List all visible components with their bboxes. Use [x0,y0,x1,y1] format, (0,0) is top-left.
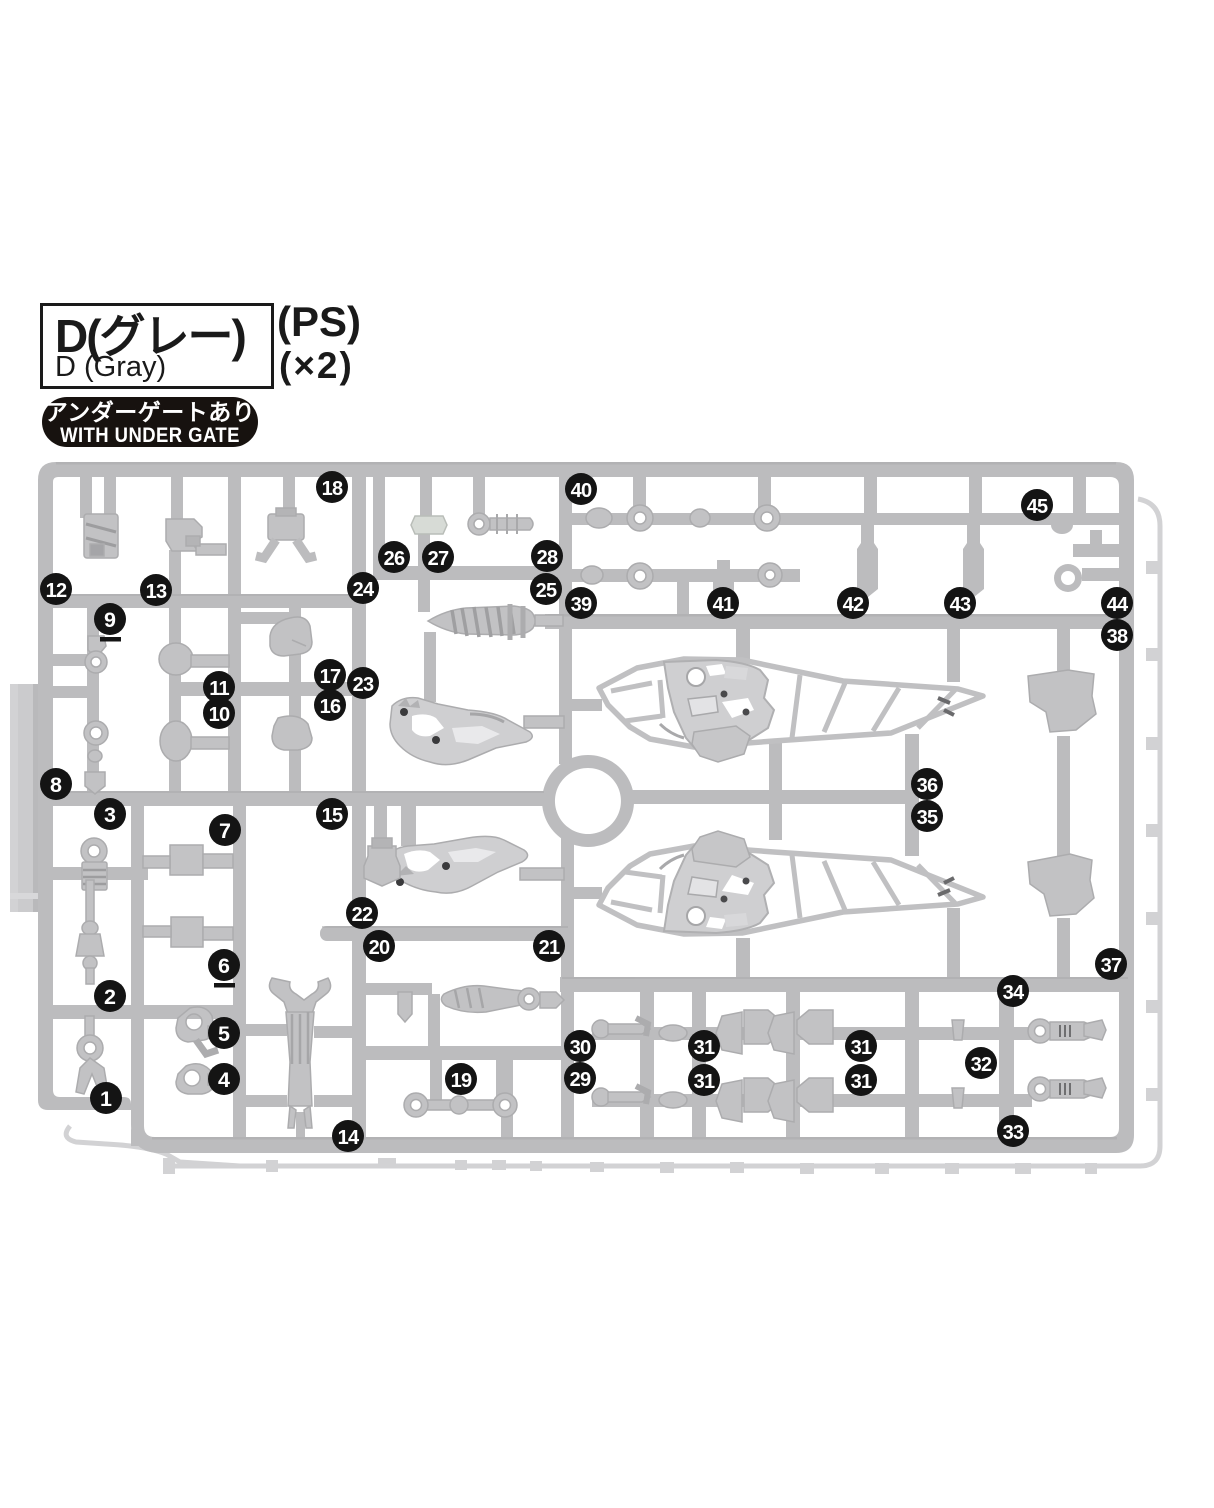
svg-text:45: 45 [1027,496,1048,518]
svg-text:31: 31 [694,1037,715,1059]
svg-text:31: 31 [694,1071,715,1093]
svg-text:8: 8 [50,773,62,797]
svg-text:43: 43 [950,594,971,616]
svg-text:35: 35 [917,807,938,829]
svg-text:19: 19 [451,1070,472,1092]
svg-text:33: 33 [1003,1122,1024,1144]
svg-text:27: 27 [428,548,449,570]
svg-text:4: 4 [218,1068,230,1092]
svg-text:11: 11 [209,678,229,700]
svg-text:30: 30 [570,1037,591,1059]
svg-text:24: 24 [353,579,375,601]
svg-text:3: 3 [104,803,116,827]
svg-text:32: 32 [971,1054,992,1076]
svg-text:5: 5 [218,1022,230,1046]
svg-text:41: 41 [713,594,734,616]
svg-text:9: 9 [104,608,116,632]
svg-text:6: 6 [218,954,230,978]
svg-text:2: 2 [104,985,116,1009]
svg-text:29: 29 [570,1069,591,1091]
svg-text:40: 40 [571,480,592,502]
svg-text:28: 28 [537,547,558,569]
svg-text:1: 1 [100,1087,112,1111]
svg-text:7: 7 [219,819,231,843]
svg-text:26: 26 [384,548,405,570]
svg-text:14: 14 [338,1127,360,1149]
svg-text:31: 31 [851,1071,872,1093]
svg-text:38: 38 [1107,626,1128,648]
svg-text:34: 34 [1003,982,1025,1004]
svg-text:22: 22 [352,904,373,926]
svg-text:23: 23 [353,674,374,696]
svg-text:12: 12 [46,580,67,602]
svg-text:13: 13 [146,581,167,603]
svg-text:10: 10 [209,704,230,726]
svg-text:44: 44 [1107,594,1129,616]
svg-text:36: 36 [917,775,938,797]
svg-text:21: 21 [539,937,560,959]
svg-text:17: 17 [320,666,341,688]
svg-text:18: 18 [322,478,343,500]
svg-text:37: 37 [1101,955,1122,977]
svg-text:42: 42 [843,594,864,616]
svg-text:25: 25 [536,580,557,602]
svg-text:31: 31 [851,1037,872,1059]
svg-text:16: 16 [320,696,341,718]
svg-text:15: 15 [322,805,343,827]
svg-text:20: 20 [369,937,390,959]
svg-text:39: 39 [571,594,592,616]
